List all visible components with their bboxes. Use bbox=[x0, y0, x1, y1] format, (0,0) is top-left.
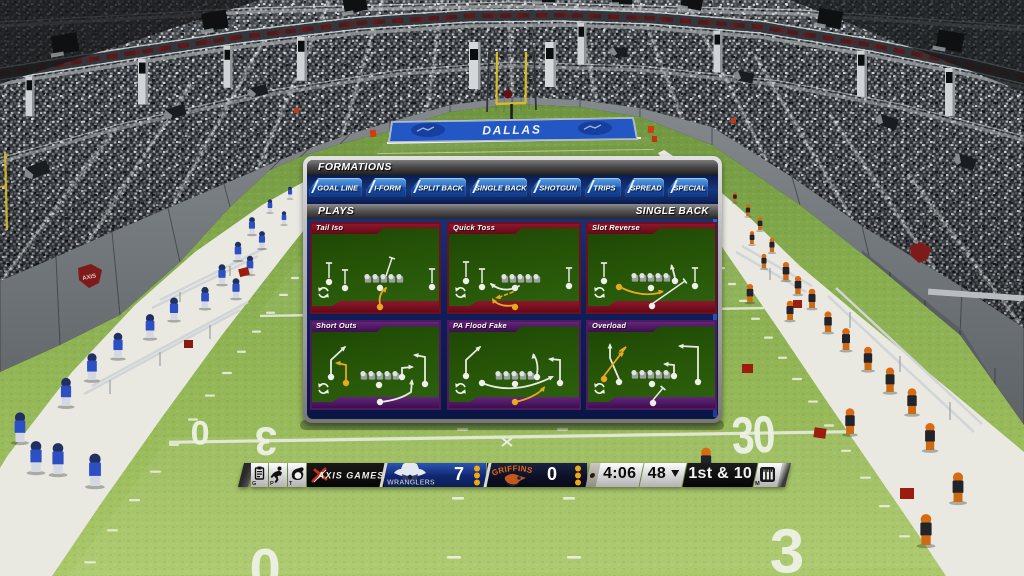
svg-text:3: 3 bbox=[770, 517, 804, 576]
svg-text:0: 0 bbox=[249, 537, 280, 576]
svg-text:0: 0 bbox=[191, 413, 210, 451]
svg-text:30: 30 bbox=[730, 405, 776, 465]
svg-text:AXIS GAMES: AXIS GAMES bbox=[317, 471, 384, 481]
svg-text:WRANGLERS: WRANGLERS bbox=[387, 480, 435, 487]
svg-text:DALLAS: DALLAS bbox=[482, 122, 542, 137]
svg-text:3: 3 bbox=[255, 418, 277, 462]
